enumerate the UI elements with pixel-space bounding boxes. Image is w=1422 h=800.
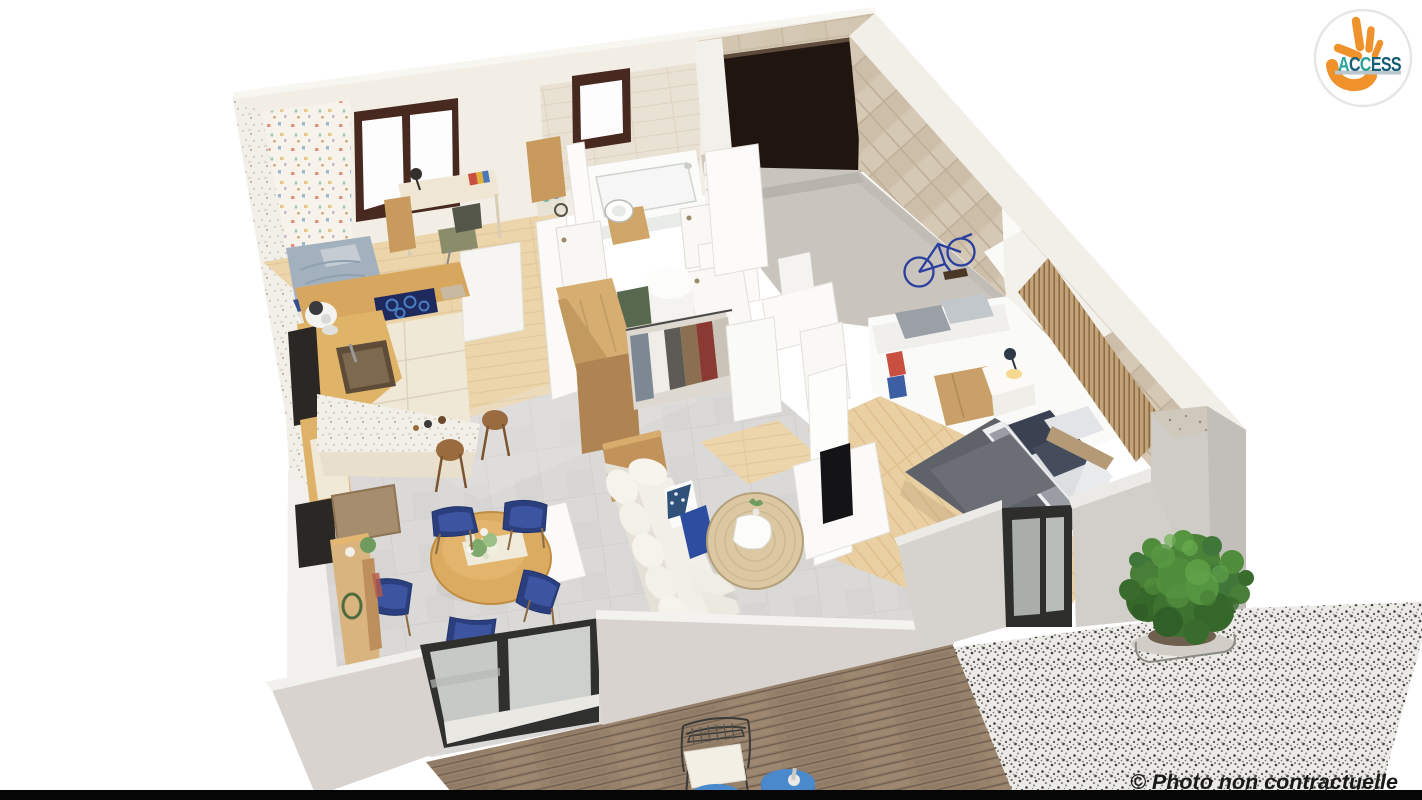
svg-text:ACCESS: ACCESS (1338, 54, 1401, 76)
svg-text:© Photo non contractuelle: © Photo non contractuelle (1130, 770, 1398, 794)
